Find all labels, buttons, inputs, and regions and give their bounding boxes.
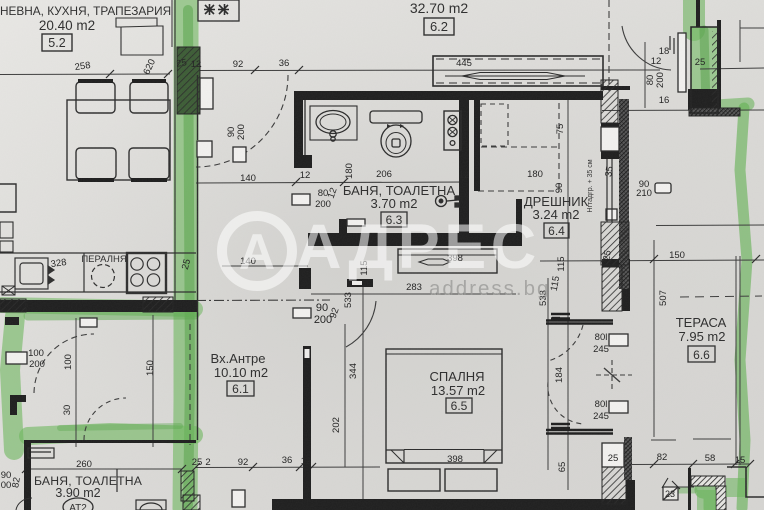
svg-text:А: А bbox=[239, 224, 275, 280]
svg-text:address.bg: address.bg bbox=[429, 277, 550, 300]
svg-text:АДРЕС: АДРЕС bbox=[296, 212, 541, 282]
